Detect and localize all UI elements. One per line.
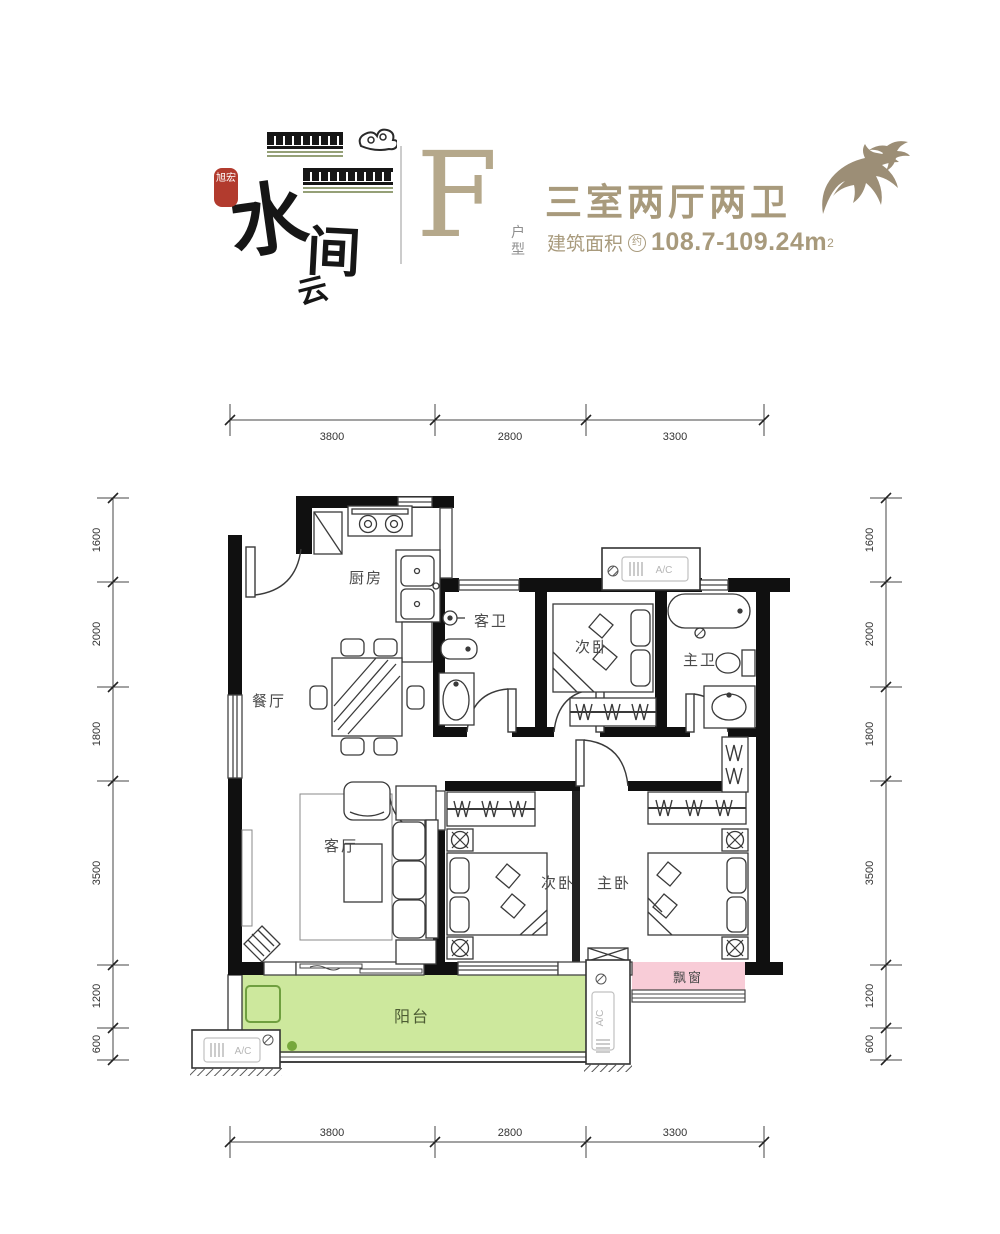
label-master-bath: 主卫	[683, 652, 717, 669]
label-bedroom2-bottom: 次卧	[541, 875, 575, 892]
dim-top-labels: 3800 2800 3300	[320, 431, 687, 443]
armchair	[344, 782, 390, 820]
ac-label: A/C	[656, 565, 673, 576]
balcony-dot-icon	[287, 1041, 297, 1051]
svg-text:2000: 2000	[91, 622, 103, 646]
ac-label: A/C	[595, 1010, 606, 1027]
label-guest-bath: 客卫	[474, 613, 508, 630]
living-furniture	[242, 782, 438, 964]
label-bedroom2-top: 次卧	[575, 639, 609, 656]
ac-bottom-left: A/C	[190, 1030, 282, 1076]
label-kitchen: 厨房	[349, 570, 383, 587]
master-furniture	[588, 737, 748, 961]
sofa-back	[426, 820, 438, 938]
svg-text:3300: 3300	[663, 1127, 687, 1139]
svg-text:3500: 3500	[864, 861, 876, 885]
washing-machine	[246, 986, 280, 1022]
bedroom2-top-furniture	[553, 604, 656, 726]
label-balcony: 阳台	[394, 1008, 430, 1026]
svg-text:2800: 2800	[498, 431, 522, 443]
toilet	[441, 639, 477, 659]
svg-text:3300: 3300	[663, 431, 687, 443]
dim-right	[870, 493, 902, 1065]
svg-text:1200: 1200	[864, 984, 876, 1008]
svg-text:2000: 2000	[864, 622, 876, 646]
ac-bottom-right: A/C	[584, 960, 632, 1072]
label-master-bedroom: 主卧	[597, 875, 631, 892]
svg-text:1600: 1600	[91, 528, 103, 552]
ac-top: A/C	[602, 548, 700, 590]
dim-right-labels: 1600 2000 1800 3500 1200 600	[864, 528, 876, 1053]
svg-text:600: 600	[864, 1035, 876, 1053]
dim-left	[97, 493, 129, 1065]
svg-text:1800: 1800	[91, 722, 103, 746]
svg-text:3800: 3800	[320, 431, 344, 443]
bedroom2-bottom-furniture	[447, 792, 547, 959]
svg-text:3500: 3500	[91, 861, 103, 885]
ac-label: A/C	[235, 1046, 252, 1057]
floorplan-poster: { "brand": { "logo_main_1": "水", "logo_m…	[0, 0, 1000, 1234]
svg-text:600: 600	[91, 1035, 103, 1053]
dim-bottom-labels: 3800 2800 3300	[320, 1127, 687, 1139]
floorplan-drawing: A/C A/C A/C 厨房 餐厅 客卫 次卧 主卫 客厅 次卧 主卧 阳台	[0, 0, 1000, 1234]
svg-text:1200: 1200	[91, 984, 103, 1008]
toilet	[716, 653, 740, 673]
label-bay-window: 飘窗	[673, 970, 703, 985]
svg-text:3800: 3800	[320, 1127, 344, 1139]
svg-text:1800: 1800	[864, 722, 876, 746]
svg-text:2800: 2800	[498, 1127, 522, 1139]
svg-text:1600: 1600	[864, 528, 876, 552]
dim-left-labels: 1600 2000 1800 3500 1200 600	[91, 528, 103, 1053]
label-living: 客厅	[324, 838, 358, 855]
label-dining: 餐厅	[252, 693, 286, 710]
